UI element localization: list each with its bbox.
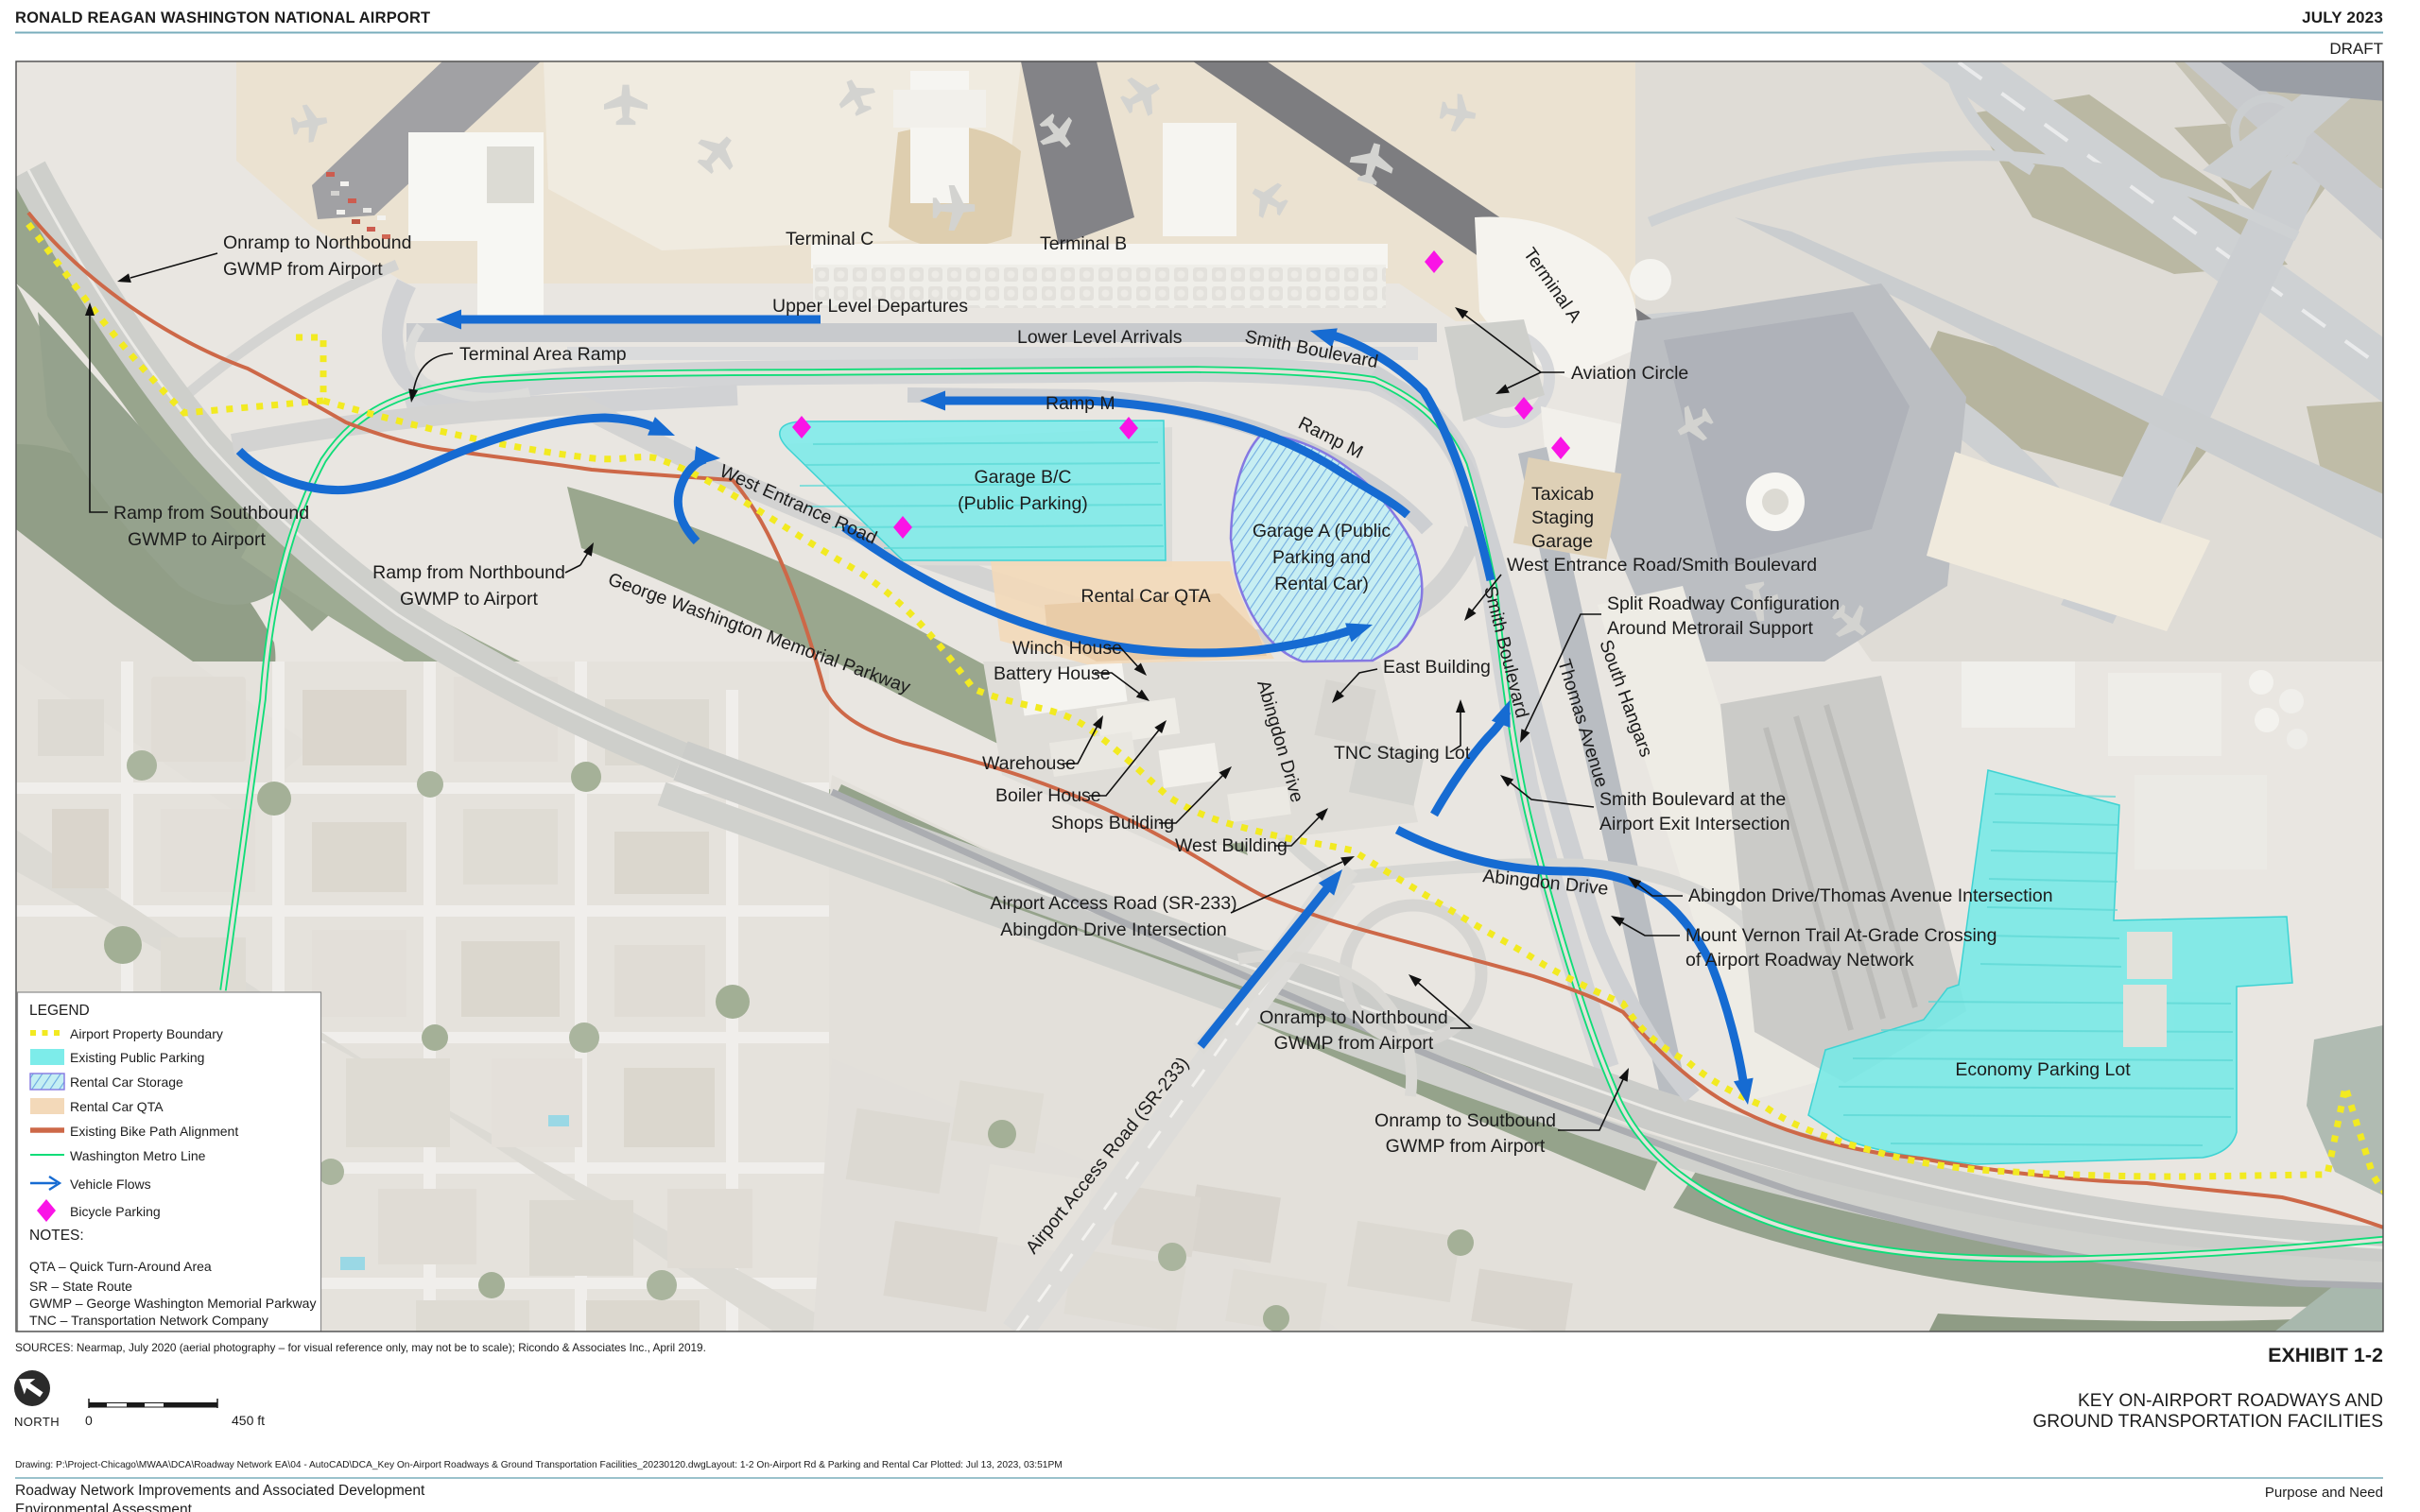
svg-text:DRAFT: DRAFT (2329, 40, 2383, 58)
svg-text:GWMP – George Washington Memor: GWMP – George Washington Memorial Parkwa… (29, 1296, 316, 1311)
svg-text:Parking and: Parking and (1272, 547, 1371, 568)
svg-text:SR – State Route: SR – State Route (29, 1279, 132, 1294)
svg-text:Washington Metro Line: Washington Metro Line (70, 1148, 206, 1163)
svg-text:GWMP from Airport: GWMP from Airport (223, 259, 383, 280)
svg-text:Staging: Staging (1531, 507, 1594, 528)
svg-text:(Public Parking): (Public Parking) (958, 493, 1088, 514)
svg-text:Vehicle Flows: Vehicle Flows (70, 1177, 151, 1192)
svg-text:Garage A (Public: Garage A (Public (1253, 521, 1391, 541)
svg-text:Abingdon Drive/Thomas Avenue I: Abingdon Drive/Thomas Avenue Intersectio… (1688, 885, 2053, 906)
svg-text:GWMP to Airport: GWMP to Airport (400, 589, 539, 610)
svg-text:GWMP from Airport: GWMP from Airport (1386, 1136, 1546, 1157)
svg-text:Mount Vernon Trail At-Grade Cr: Mount Vernon Trail At-Grade Crossing (1685, 925, 1997, 946)
svg-text:Smith Boulevard at the: Smith Boulevard at the (1599, 789, 1786, 810)
svg-text:of Airport Roadway Network: of Airport Roadway Network (1685, 950, 1914, 971)
svg-text:RONALD REAGAN WASHINGTON NATIO: RONALD REAGAN WASHINGTON NATIONAL AIRPOR… (15, 9, 430, 26)
svg-text:Aviation Circle: Aviation Circle (1571, 363, 1688, 384)
svg-text:NOTES:: NOTES: (29, 1228, 84, 1244)
svg-text:GWMP from Airport: GWMP from Airport (1274, 1033, 1434, 1054)
svg-text:LEGEND: LEGEND (29, 1003, 90, 1019)
svg-text:Roadway Network Improvements a: Roadway Network Improvements and Associa… (15, 1483, 425, 1499)
svg-text:Terminal B: Terminal B (1040, 233, 1127, 254)
svg-text:TNC – Transportation Network C: TNC – Transportation Network Company (29, 1313, 268, 1328)
svg-text:Garage: Garage (1531, 531, 1593, 552)
svg-text:JULY 2023: JULY 2023 (2302, 9, 2383, 26)
svg-text:Onramp to Northbound: Onramp to Northbound (1259, 1007, 1447, 1028)
svg-text:EXHIBIT 1-2: EXHIBIT 1-2 (2268, 1344, 2383, 1366)
svg-text:Existing Bike Path Alignment: Existing Bike Path Alignment (70, 1124, 238, 1139)
svg-text:Battery House: Battery House (994, 663, 1111, 684)
svg-text:Abingdon Drive Intersection: Abingdon Drive Intersection (1000, 919, 1227, 940)
svg-text:Upper Level Departures: Upper Level Departures (772, 296, 968, 317)
svg-text:450 ft: 450 ft (232, 1413, 265, 1428)
svg-text:GROUND TRANSPORTATION FACILITI: GROUND TRANSPORTATION FACILITIES (2032, 1412, 2383, 1432)
svg-text:Ramp from Northbound: Ramp from Northbound (372, 562, 565, 583)
svg-text:Existing Public Parking: Existing Public Parking (70, 1050, 204, 1065)
svg-text:SOURCES: Nearmap, July 2020 (a: SOURCES: Nearmap, July 2020 (aerial phot… (15, 1341, 706, 1354)
svg-text:Boiler House: Boiler House (995, 785, 1101, 806)
svg-text:QTA – Quick Turn-Around Area: QTA – Quick Turn-Around Area (29, 1259, 212, 1274)
svg-text:Purpose and Need: Purpose and Need (2265, 1485, 2383, 1501)
svg-text:Terminal C: Terminal C (786, 229, 873, 249)
svg-text:Environmental Assessment: Environmental Assessment (15, 1502, 193, 1512)
svg-text:Rental Car QTA: Rental Car QTA (70, 1099, 164, 1114)
svg-text:NORTH: NORTH (14, 1415, 60, 1429)
svg-text:Ramp from Southbound: Ramp from Southbound (113, 503, 309, 524)
svg-text:Rental Car Storage: Rental Car Storage (70, 1074, 183, 1090)
svg-text:Winch House: Winch House (1012, 638, 1122, 659)
svg-text:TNC Staging Lot: TNC Staging Lot (1334, 743, 1471, 764)
svg-text:West Building: West Building (1175, 835, 1288, 856)
svg-text:Airport Property Boundary: Airport Property Boundary (70, 1026, 223, 1041)
svg-text:GWMP to Airport: GWMP to Airport (128, 529, 267, 550)
svg-text:Garage B/C: Garage B/C (975, 467, 1072, 488)
svg-text:Warehouse: Warehouse (982, 753, 1076, 774)
svg-text:Taxicab: Taxicab (1531, 484, 1594, 505)
svg-text:Airport Access Road (SR-233): Airport Access Road (SR-233) (990, 893, 1236, 914)
svg-text:Shops Building: Shops Building (1051, 813, 1174, 833)
svg-text:Rental Car QTA: Rental Car QTA (1080, 586, 1210, 607)
svg-text:0: 0 (85, 1413, 93, 1428)
svg-text:Onramp to Soutbound: Onramp to Soutbound (1374, 1110, 1556, 1131)
svg-text:Ramp M: Ramp M (1046, 393, 1115, 414)
svg-text:Split Roadway Configuration: Split Roadway Configuration (1607, 593, 1840, 614)
svg-text:East Building: East Building (1383, 657, 1491, 678)
svg-text:Onramp to Northbound: Onramp to Northbound (223, 232, 411, 253)
svg-text:Rental Car): Rental Car) (1274, 574, 1369, 594)
svg-text:Economy Parking Lot: Economy Parking Lot (1955, 1059, 2131, 1080)
svg-text:West Entrance Road/Smith Boule: West Entrance Road/Smith Boulevard (1507, 555, 1817, 576)
svg-text:Terminal Area Ramp: Terminal Area Ramp (459, 344, 627, 365)
svg-text:KEY ON-AIRPORT ROADWAYS AND: KEY ON-AIRPORT ROADWAYS AND (2078, 1391, 2383, 1411)
svg-text:Airport Exit Intersection: Airport Exit Intersection (1599, 814, 1790, 834)
svg-text:Drawing: P:\Project-Chicago\MW: Drawing: P:\Project-Chicago\MWAA\DCA\Roa… (15, 1460, 1063, 1470)
svg-text:Around Metrorail Support: Around Metrorail Support (1607, 618, 1813, 639)
svg-text:Lower Level Arrivals: Lower Level Arrivals (1017, 327, 1183, 348)
svg-text:Bicycle Parking: Bicycle Parking (70, 1204, 161, 1219)
